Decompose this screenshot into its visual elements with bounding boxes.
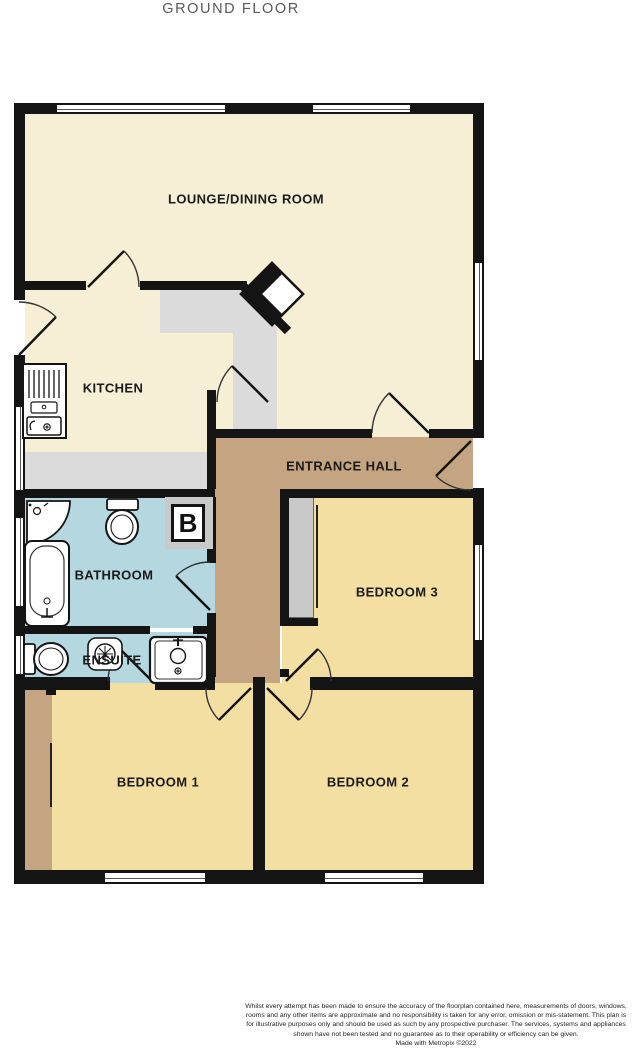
disclaimer-text: Whilst every attempt has been made to en… xyxy=(245,1002,627,1039)
bedroom2-label: BEDROOM 2 xyxy=(327,775,409,790)
wall xyxy=(280,618,318,626)
floorplan-page: GROUND FLOOR xyxy=(0,0,633,1056)
bedroom1-wardrobe xyxy=(25,688,52,872)
lounge-label: LOUNGE/DINING ROOM xyxy=(168,192,324,207)
bedroom1-label: BEDROOM 1 xyxy=(117,775,199,790)
window xyxy=(473,545,484,640)
window xyxy=(14,636,25,674)
boiler-box: B xyxy=(165,497,213,549)
wall xyxy=(310,677,473,690)
ensuite-label: ENSUITE xyxy=(82,653,141,668)
window xyxy=(14,407,25,490)
window xyxy=(14,518,25,606)
wall xyxy=(140,281,247,290)
wall xyxy=(215,429,372,438)
bedroom3-label: BEDROOM 3 xyxy=(356,585,438,600)
wall xyxy=(280,489,473,498)
wall xyxy=(193,626,215,634)
boiler-label: B xyxy=(171,504,205,542)
kitchen-walkway xyxy=(233,288,277,437)
kitchen-label: KITCHEN xyxy=(83,381,144,396)
wall xyxy=(155,677,215,690)
credit-text: Made with Metropix ©2022 xyxy=(245,1039,627,1048)
wall xyxy=(473,103,484,884)
wall xyxy=(24,281,86,290)
wall xyxy=(14,677,110,690)
wall xyxy=(46,683,56,695)
window xyxy=(313,103,410,114)
front-door-gap xyxy=(473,438,484,488)
footer: Whilst every attempt has been made to en… xyxy=(245,1002,627,1048)
entrance-hall-label: ENTRANCE HALL xyxy=(286,459,402,474)
wall xyxy=(207,613,216,677)
window xyxy=(57,103,225,114)
wall xyxy=(24,626,150,634)
window xyxy=(473,263,484,360)
window xyxy=(105,871,205,884)
bedroom3-wardrobe-door-line xyxy=(316,505,318,608)
wall xyxy=(253,677,265,872)
wall xyxy=(207,390,216,489)
kitchen-door-gap xyxy=(14,300,25,355)
page-title: GROUND FLOOR xyxy=(162,1,300,17)
window xyxy=(325,871,423,884)
bathroom-label: BATHROOM xyxy=(75,568,154,583)
bedroom3-wardrobe xyxy=(288,497,314,618)
hall-floor-corridor xyxy=(215,489,280,683)
wall xyxy=(280,669,289,677)
wall xyxy=(429,429,473,438)
bedroom1-wardrobe-door-line xyxy=(50,743,52,807)
wall xyxy=(280,489,289,622)
